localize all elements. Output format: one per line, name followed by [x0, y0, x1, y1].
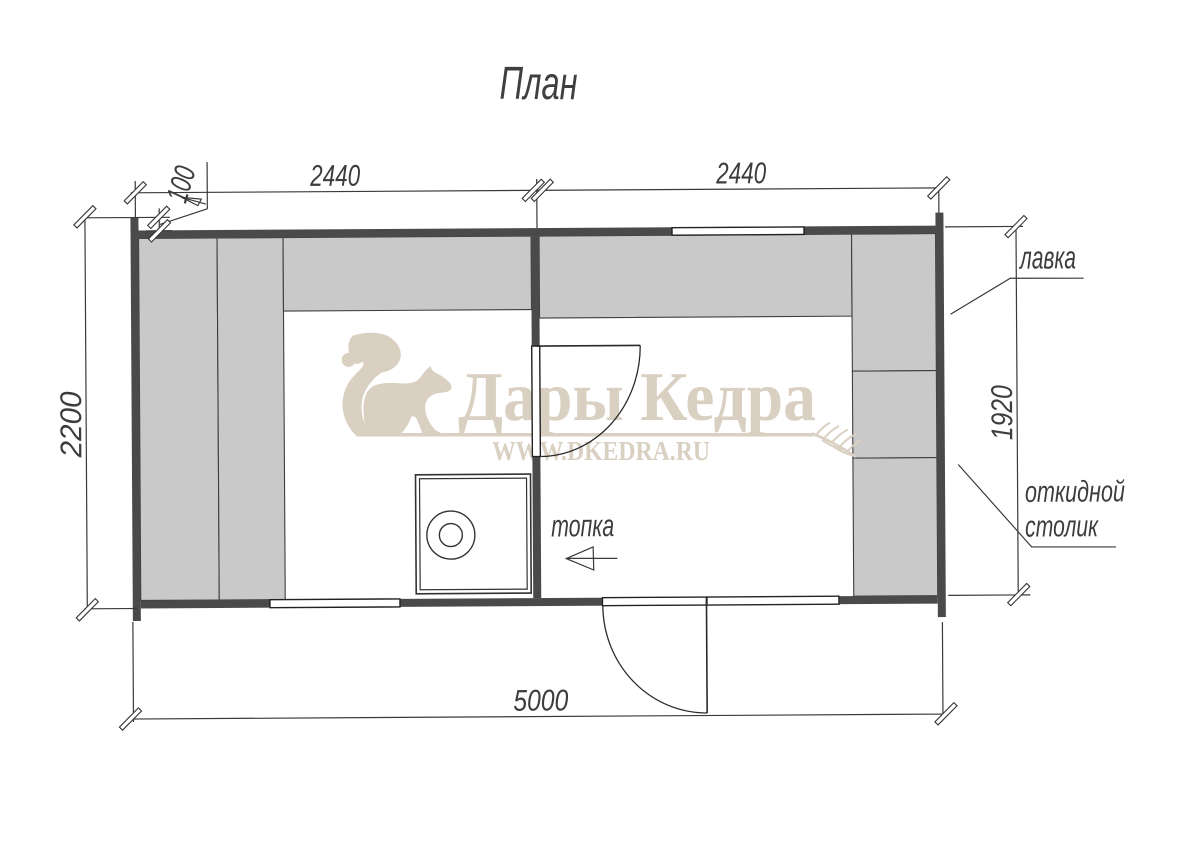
- svg-text:2200: 2200: [55, 391, 88, 458]
- svg-text:столик: столик: [1025, 510, 1099, 543]
- svg-text:WWW.DKEDRA.RU: WWW.DKEDRA.RU: [492, 436, 710, 466]
- svg-text:откидной: откидной: [1025, 475, 1125, 509]
- svg-text:топка: топка: [551, 508, 614, 543]
- svg-text:2440: 2440: [309, 160, 360, 193]
- svg-text:1920: 1920: [986, 385, 1019, 440]
- svg-text:2440: 2440: [715, 157, 766, 190]
- svg-text:лавка: лавка: [1019, 239, 1077, 275]
- svg-text:5000: 5000: [513, 684, 568, 717]
- svg-text:План: План: [500, 57, 578, 109]
- svg-text:Дары Кедра: Дары Кедра: [458, 359, 816, 436]
